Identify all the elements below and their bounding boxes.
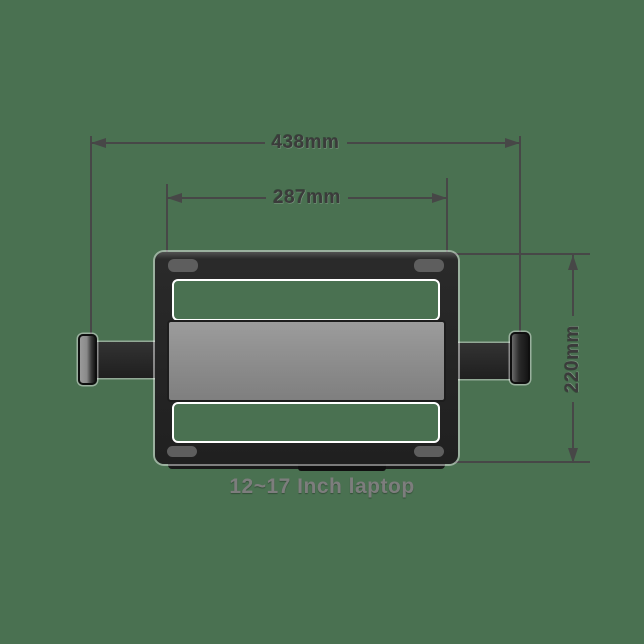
caption-text: 12~17 Inch laptop — [0, 475, 644, 499]
dimension-outer-width: 438mm — [91, 138, 520, 148]
dimension-inner-width: 287mm — [167, 193, 447, 203]
lower-cutout-window — [172, 402, 440, 443]
upper-cutout-window — [172, 279, 440, 321]
extension-line-inner-right — [446, 178, 448, 254]
mounting-slot-bottom-left — [167, 446, 197, 457]
arrow-left-icon — [91, 138, 106, 148]
right-clamp — [510, 332, 530, 384]
mounting-slot-top-right — [414, 259, 444, 272]
arrow-right-icon — [432, 193, 447, 203]
dimension-label-inner-width: 287mm — [266, 187, 348, 209]
extension-line-outer-right — [519, 136, 521, 334]
laptop-tray-dimension-diagram: 438mm 287mm 220mm 12~17 Inch laptop — [0, 0, 644, 644]
mounting-slot-bottom-right — [414, 446, 444, 457]
mounting-slot-top-left — [168, 259, 198, 272]
right-arm — [450, 343, 516, 379]
dimension-height: 220mm — [568, 255, 578, 463]
arrow-right-icon — [505, 138, 520, 148]
dimension-label-height: 220mm — [562, 316, 584, 402]
laptop-tray-frame — [155, 252, 458, 464]
left-clamp — [78, 334, 97, 385]
arrow-left-icon — [167, 193, 182, 203]
dimension-label-outer-width: 438mm — [265, 132, 347, 154]
arrow-down-icon — [568, 448, 578, 463]
laptop-platform — [167, 320, 446, 402]
bottom-lip-center — [298, 463, 386, 471]
extension-line-outer-left — [90, 136, 92, 336]
arrow-up-icon — [568, 255, 578, 270]
